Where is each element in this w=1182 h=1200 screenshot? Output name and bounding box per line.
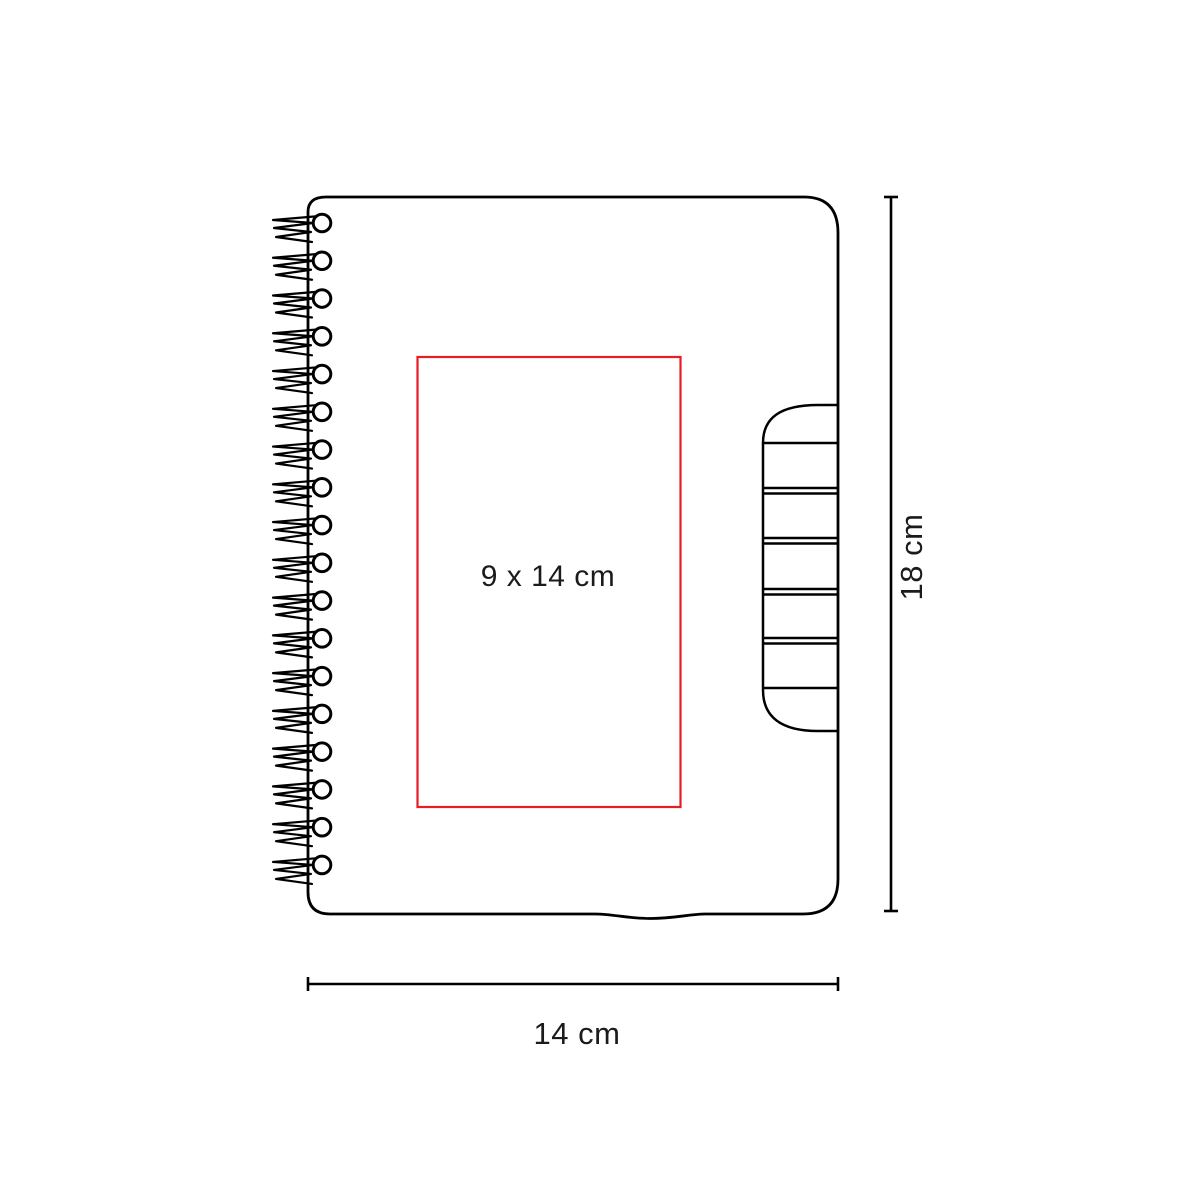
print-area-label: 9 x 14 cm [481,560,616,593]
notebook-dimension-diagram: 9 x 14 cm 18 cm 14 cm [0,0,1182,1200]
height-dimension-label: 18 cm [894,514,929,601]
height-dimension: 18 cm [884,197,929,911]
diagram-canvas: 9 x 14 cm 18 cm 14 cm [0,0,1182,1200]
width-dimension-label: 14 cm [534,1016,621,1051]
width-dimension: 14 cm [308,977,838,1051]
notebook-body-outline [308,197,838,919]
